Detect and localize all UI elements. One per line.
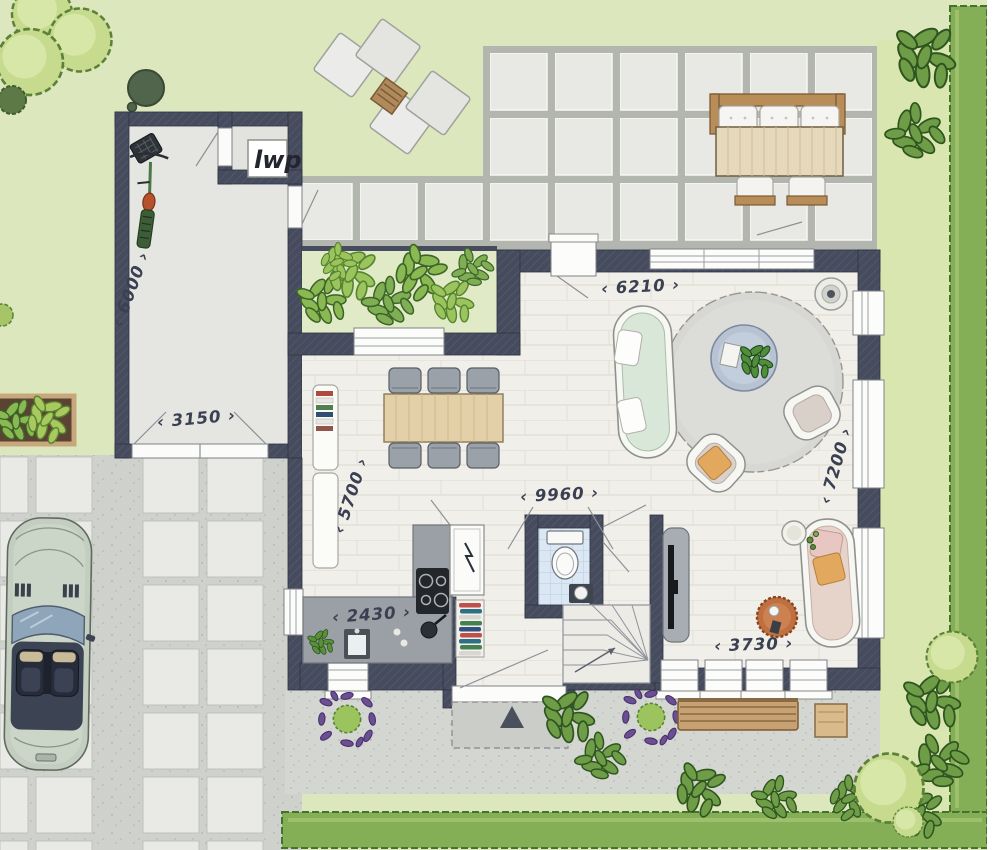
floor-plan-illustration: lwp	[0, 0, 999, 850]
dining-table-icon	[384, 394, 503, 442]
tv-icon	[668, 545, 674, 629]
sink-icon	[344, 629, 370, 660]
meter-cabinet-icon	[450, 525, 484, 595]
car-seats	[16, 649, 79, 696]
garden-bench-icon	[678, 698, 798, 730]
stove-icon	[416, 568, 449, 614]
garden-chair-icon	[787, 177, 827, 205]
staircase-icon	[563, 605, 650, 683]
washbasin-icon	[569, 584, 593, 603]
planter-box	[0, 384, 80, 450]
pan-icon	[421, 622, 437, 638]
wood-stool-icon	[815, 704, 847, 737]
shed: lwp	[115, 112, 318, 458]
heat-pump-unit: lwp	[248, 140, 302, 177]
chaise-longue-icon	[799, 517, 862, 648]
dimension-terrace-width: ‹ 3730 ›	[714, 634, 794, 656]
car-icon	[4, 517, 98, 771]
garden-chair-icon	[735, 177, 775, 205]
coffee-table-icon	[711, 325, 779, 391]
dining-set	[384, 368, 503, 468]
sofa-icon	[611, 305, 678, 460]
lwp-label: lwp	[254, 146, 302, 174]
tall-cabinets	[313, 385, 338, 568]
shrub-bed	[296, 234, 500, 335]
page-margin	[987, 0, 999, 850]
round-side-table-icon	[757, 597, 797, 637]
tv-cabinet-icon	[663, 528, 689, 642]
pantry-rack-icon	[456, 600, 484, 657]
floor-lamp-icon	[815, 278, 847, 310]
floor-plan-page: lwp	[0, 0, 999, 850]
